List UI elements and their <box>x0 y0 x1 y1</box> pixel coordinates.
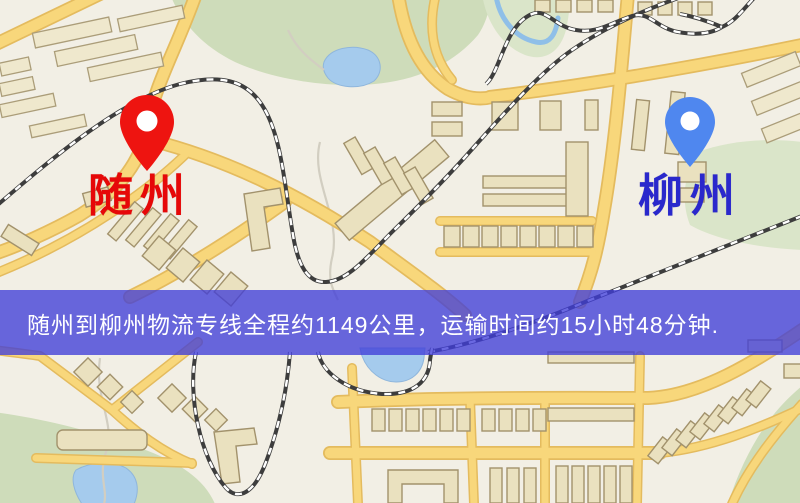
route-info-text: 随州到柳州物流专线全程约1149公里，运输时间约15小时48分钟. <box>0 306 719 340</box>
route-map-page: 随州 柳州 随州到柳州物流专线全程约1149公里，运输时间约15小时48分钟. <box>0 0 800 503</box>
map-canvas[interactable] <box>0 0 800 503</box>
destination-label: 柳州 <box>638 174 742 219</box>
origin-label: 随州 <box>88 174 192 219</box>
route-info-banner: 随州到柳州物流专线全程约1149公里，运输时间约15小时48分钟. <box>0 290 800 355</box>
